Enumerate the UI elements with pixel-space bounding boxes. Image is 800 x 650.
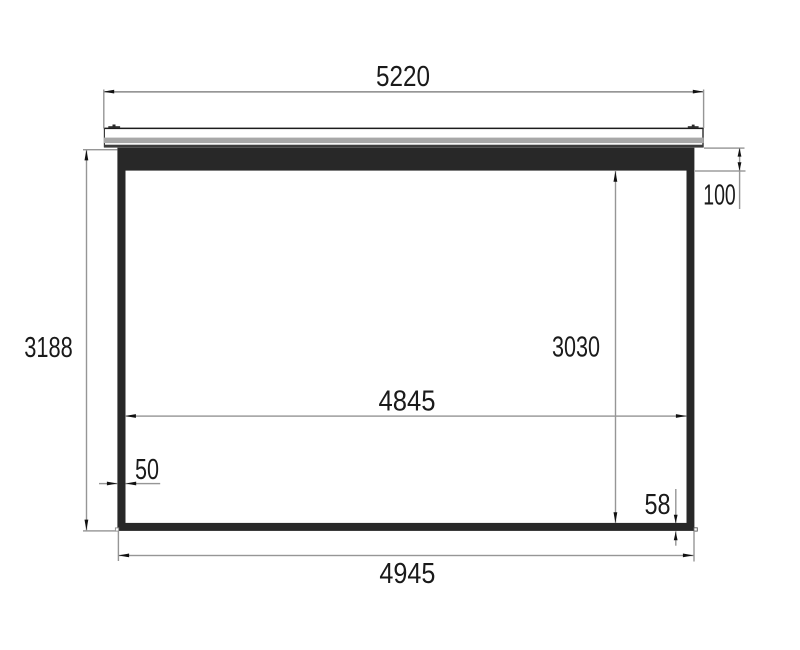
svg-text:4845: 4845 (379, 386, 436, 418)
svg-text:100: 100 (703, 179, 736, 211)
svg-text:3030: 3030 (552, 331, 600, 363)
svg-text:4945: 4945 (379, 558, 435, 590)
svg-text:58: 58 (645, 489, 671, 521)
svg-text:5220: 5220 (376, 61, 430, 93)
svg-text:50: 50 (135, 454, 159, 486)
svg-text:3188: 3188 (24, 332, 73, 364)
